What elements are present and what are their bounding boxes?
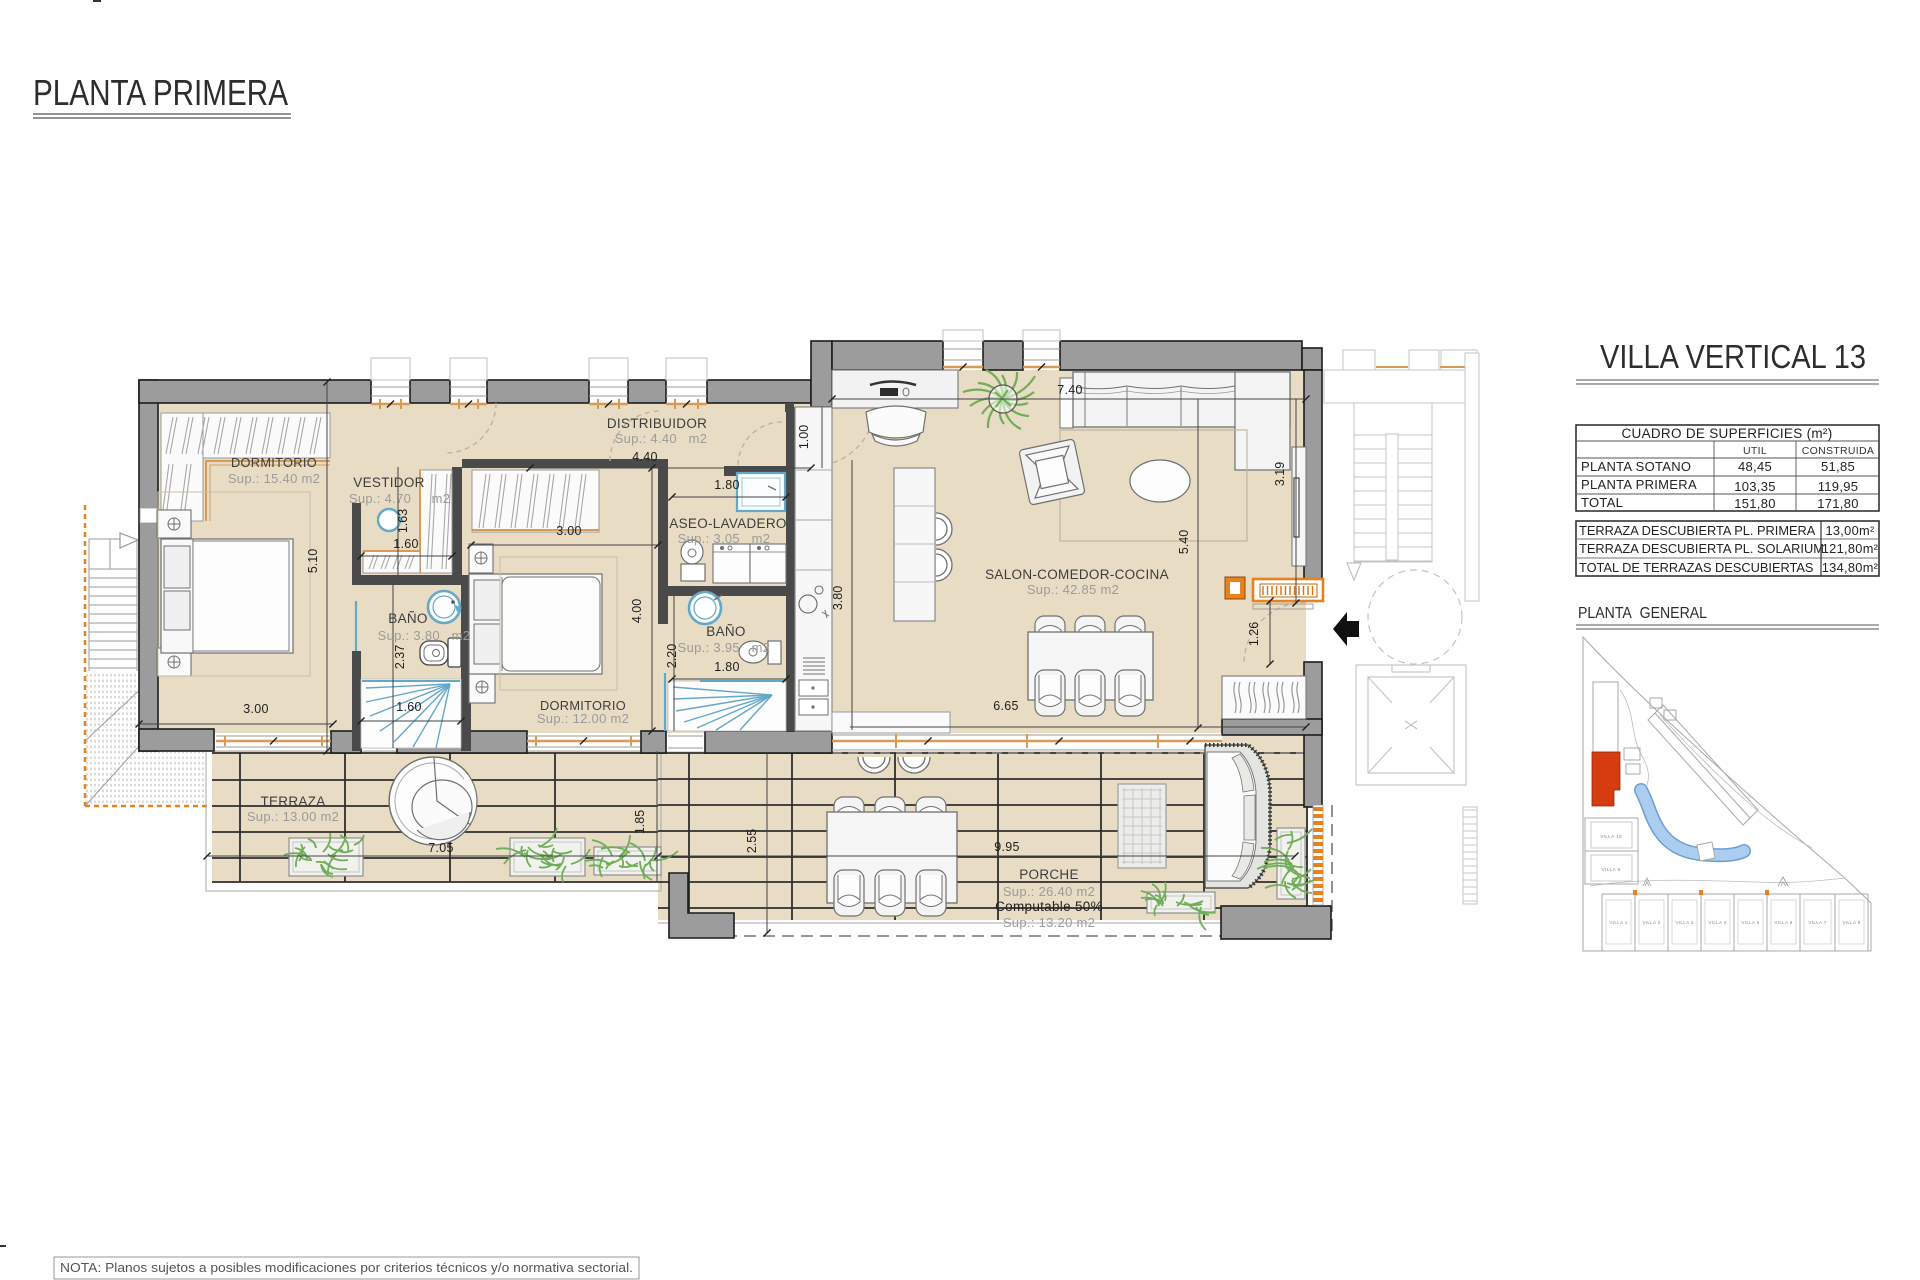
svg-text:BAÑO: BAÑO [706, 624, 745, 639]
svg-text:Sup.: 13.00 m2: Sup.: 13.00 m2 [247, 809, 339, 824]
svg-text:UTIL: UTIL [1743, 445, 1767, 457]
svg-text:Sup.: 3.05 m2: Sup.: 3.05 m2 [678, 531, 771, 546]
svg-text:1.00: 1.00 [797, 425, 811, 449]
svg-text:PLANTA PRIMERA: PLANTA PRIMERA [33, 72, 288, 113]
svg-text:51,85: 51,85 [1821, 459, 1855, 474]
svg-text:Sup.: 4.70: Sup.: 4.70 [349, 491, 411, 506]
svg-text:Sup.: 15.40 m2: Sup.: 15.40 m2 [228, 471, 320, 486]
svg-text:7.40: 7.40 [1057, 383, 1083, 397]
svg-text:Sup.: 12.00 m2: Sup.: 12.00 m2 [537, 711, 629, 726]
svg-text:7.05: 7.05 [428, 841, 454, 855]
svg-text:48,45: 48,45 [1738, 459, 1772, 474]
svg-text:ASEO-LAVADERO: ASEO-LAVADERO [669, 516, 786, 531]
svg-text:2.55: 2.55 [745, 829, 759, 853]
svg-text:103,35: 103,35 [1734, 479, 1776, 494]
svg-text:151,80: 151,80 [1734, 496, 1776, 511]
svg-text:3.00: 3.00 [556, 524, 582, 538]
svg-text:119,95: 119,95 [1818, 479, 1859, 494]
svg-text:Sup.: 3.80 m2: Sup.: 3.80 m2 [378, 628, 471, 643]
svg-text:VILLA 4: VILLA 4 [1708, 920, 1726, 925]
svg-text:171,80: 171,80 [1817, 496, 1859, 511]
svg-text:SALON-COMEDOR-COCINA: SALON-COMEDOR-COCINA [985, 567, 1169, 582]
svg-text:TERRAZA DESCUBIERTA PL. PRIMER: TERRAZA DESCUBIERTA PL. PRIMERA [1579, 523, 1816, 538]
svg-text:VESTIDOR: VESTIDOR [353, 475, 424, 490]
svg-text:Sup.: 42.85 m2: Sup.: 42.85 m2 [1027, 582, 1119, 597]
svg-text:VILLA 8: VILLA 8 [1842, 920, 1860, 925]
svg-text:Computable 50%: Computable 50% [995, 899, 1103, 914]
svg-text:VILLA 6: VILLA 6 [1774, 920, 1792, 925]
svg-text:3.80: 3.80 [831, 586, 845, 610]
svg-text:5.40: 5.40 [1177, 530, 1191, 554]
svg-text:134,80m²: 134,80m² [1822, 560, 1879, 575]
svg-text:PLANTA PRIMERA: PLANTA PRIMERA [1581, 477, 1697, 492]
svg-text:121,80m²: 121,80m² [1822, 541, 1879, 556]
svg-text:1.63: 1.63 [396, 509, 410, 533]
svg-text:Sup.: 4.40 m2: Sup.: 4.40 m2 [615, 431, 708, 446]
svg-text:1.60: 1.60 [396, 700, 422, 714]
svg-text:VILLA 9: VILLA 9 [1602, 867, 1621, 873]
svg-text:DISTRIBUIDOR: DISTRIBUIDOR [607, 416, 707, 431]
svg-text:VILLA 7: VILLA 7 [1808, 920, 1826, 925]
svg-text:VILLA 10: VILLA 10 [1600, 834, 1622, 840]
svg-text:DORMITORIO: DORMITORIO [231, 455, 317, 470]
svg-text:3.00: 3.00 [243, 702, 269, 716]
svg-text:TERRAZA: TERRAZA [260, 794, 325, 809]
svg-text:VILLA 3: VILLA 3 [1675, 920, 1693, 925]
svg-text:3.19: 3.19 [1273, 462, 1287, 486]
svg-text:2.37: 2.37 [393, 645, 407, 669]
svg-text:CONSTRUIDA: CONSTRUIDA [1802, 445, 1874, 457]
svg-text:4.40: 4.40 [632, 450, 658, 464]
svg-text:4.00: 4.00 [630, 599, 644, 623]
svg-text:1.80: 1.80 [714, 478, 740, 492]
svg-text:Sup.: 3.95 m2: Sup.: 3.95 m2 [678, 640, 771, 655]
svg-text:13,00m²: 13,00m² [1825, 523, 1874, 538]
svg-text:TOTAL: TOTAL [1581, 495, 1623, 510]
svg-text:PORCHE: PORCHE [1019, 867, 1079, 882]
svg-text:VILLA 5: VILLA 5 [1741, 920, 1759, 925]
svg-text:5.10: 5.10 [306, 549, 320, 573]
svg-text:CUADRO DE SUPERFICIES (m²): CUADRO DE SUPERFICIES (m²) [1621, 426, 1832, 441]
svg-text:1.80: 1.80 [714, 660, 740, 674]
svg-text:1.26: 1.26 [1247, 622, 1261, 646]
svg-text:VILLA VERTICAL 13: VILLA VERTICAL 13 [1600, 338, 1866, 375]
svg-text:PLANTA GENERAL: PLANTA GENERAL [1578, 605, 1707, 622]
svg-text:Sup.: 26.40 m2: Sup.: 26.40 m2 [1003, 884, 1095, 899]
svg-text:1.85: 1.85 [633, 810, 647, 834]
svg-text:1.60: 1.60 [393, 537, 419, 551]
svg-text:Sup.: 13.20 m2: Sup.: 13.20 m2 [1003, 915, 1095, 930]
svg-text:VILLA 1: VILLA 1 [1609, 920, 1627, 925]
svg-text:m2: m2 [432, 491, 451, 506]
svg-text:TERRAZA DESCUBIERTA PL. SOLARI: TERRAZA DESCUBIERTA PL. SOLARIUM [1579, 541, 1824, 556]
svg-text:6.65: 6.65 [993, 699, 1019, 713]
svg-text:PLANTA SOTANO: PLANTA SOTANO [1581, 459, 1691, 474]
svg-text:NOTA: Planos sujetos a posible: NOTA: Planos sujetos a posibles modifica… [60, 1260, 633, 1275]
svg-text:BAÑO: BAÑO [388, 611, 427, 626]
svg-text:VILLA 2: VILLA 2 [1642, 920, 1660, 925]
svg-text:TOTAL DE TERRAZAS DESCUBIERTAS: TOTAL DE TERRAZAS DESCUBIERTAS [1579, 560, 1813, 575]
svg-text:9.95: 9.95 [994, 840, 1020, 854]
